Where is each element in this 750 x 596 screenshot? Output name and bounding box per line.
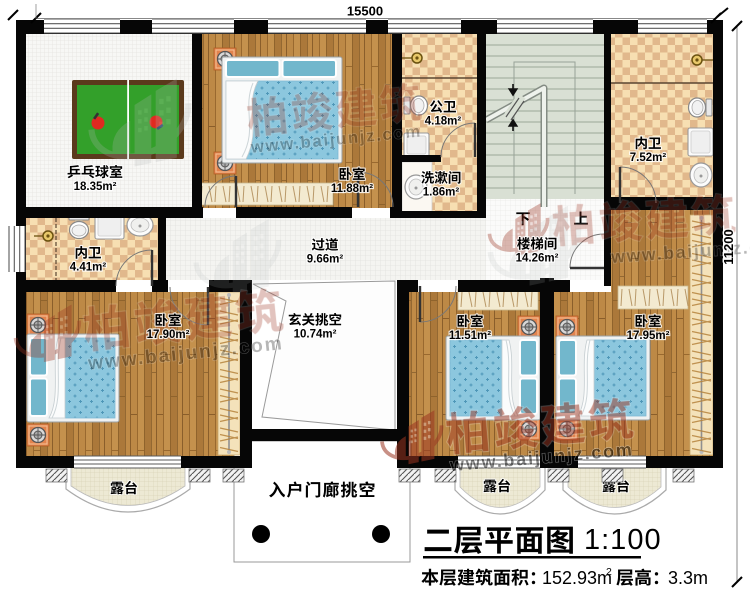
svg-text:17.90m²: 17.90m² <box>147 329 190 341</box>
svg-text:17.95m²: 17.95m² <box>627 330 670 342</box>
svg-text:10.74m²: 10.74m² <box>294 329 337 341</box>
svg-text:7.52m²: 7.52m² <box>630 152 667 164</box>
svg-text:3.3m: 3.3m <box>668 568 708 588</box>
svg-text:9.66m²: 9.66m² <box>307 254 344 266</box>
svg-text:1.86m²: 1.86m² <box>423 187 460 199</box>
svg-text:11.51m²: 11.51m² <box>449 330 491 342</box>
svg-text:4.41m²: 4.41m² <box>70 262 107 274</box>
svg-text:152.93m: 152.93m <box>542 568 612 588</box>
svg-text:1:100: 1:100 <box>584 524 662 556</box>
svg-text:11200: 11200 <box>721 229 736 264</box>
svg-text:18.35m²: 18.35m² <box>74 181 117 193</box>
svg-text:11.88m²: 11.88m² <box>331 183 373 195</box>
svg-text:2: 2 <box>606 566 612 578</box>
svg-text:4.18m²: 4.18m² <box>425 116 462 128</box>
svg-text:14.26m²: 14.26m² <box>516 253 559 265</box>
svg-text:15500: 15500 <box>347 4 383 19</box>
